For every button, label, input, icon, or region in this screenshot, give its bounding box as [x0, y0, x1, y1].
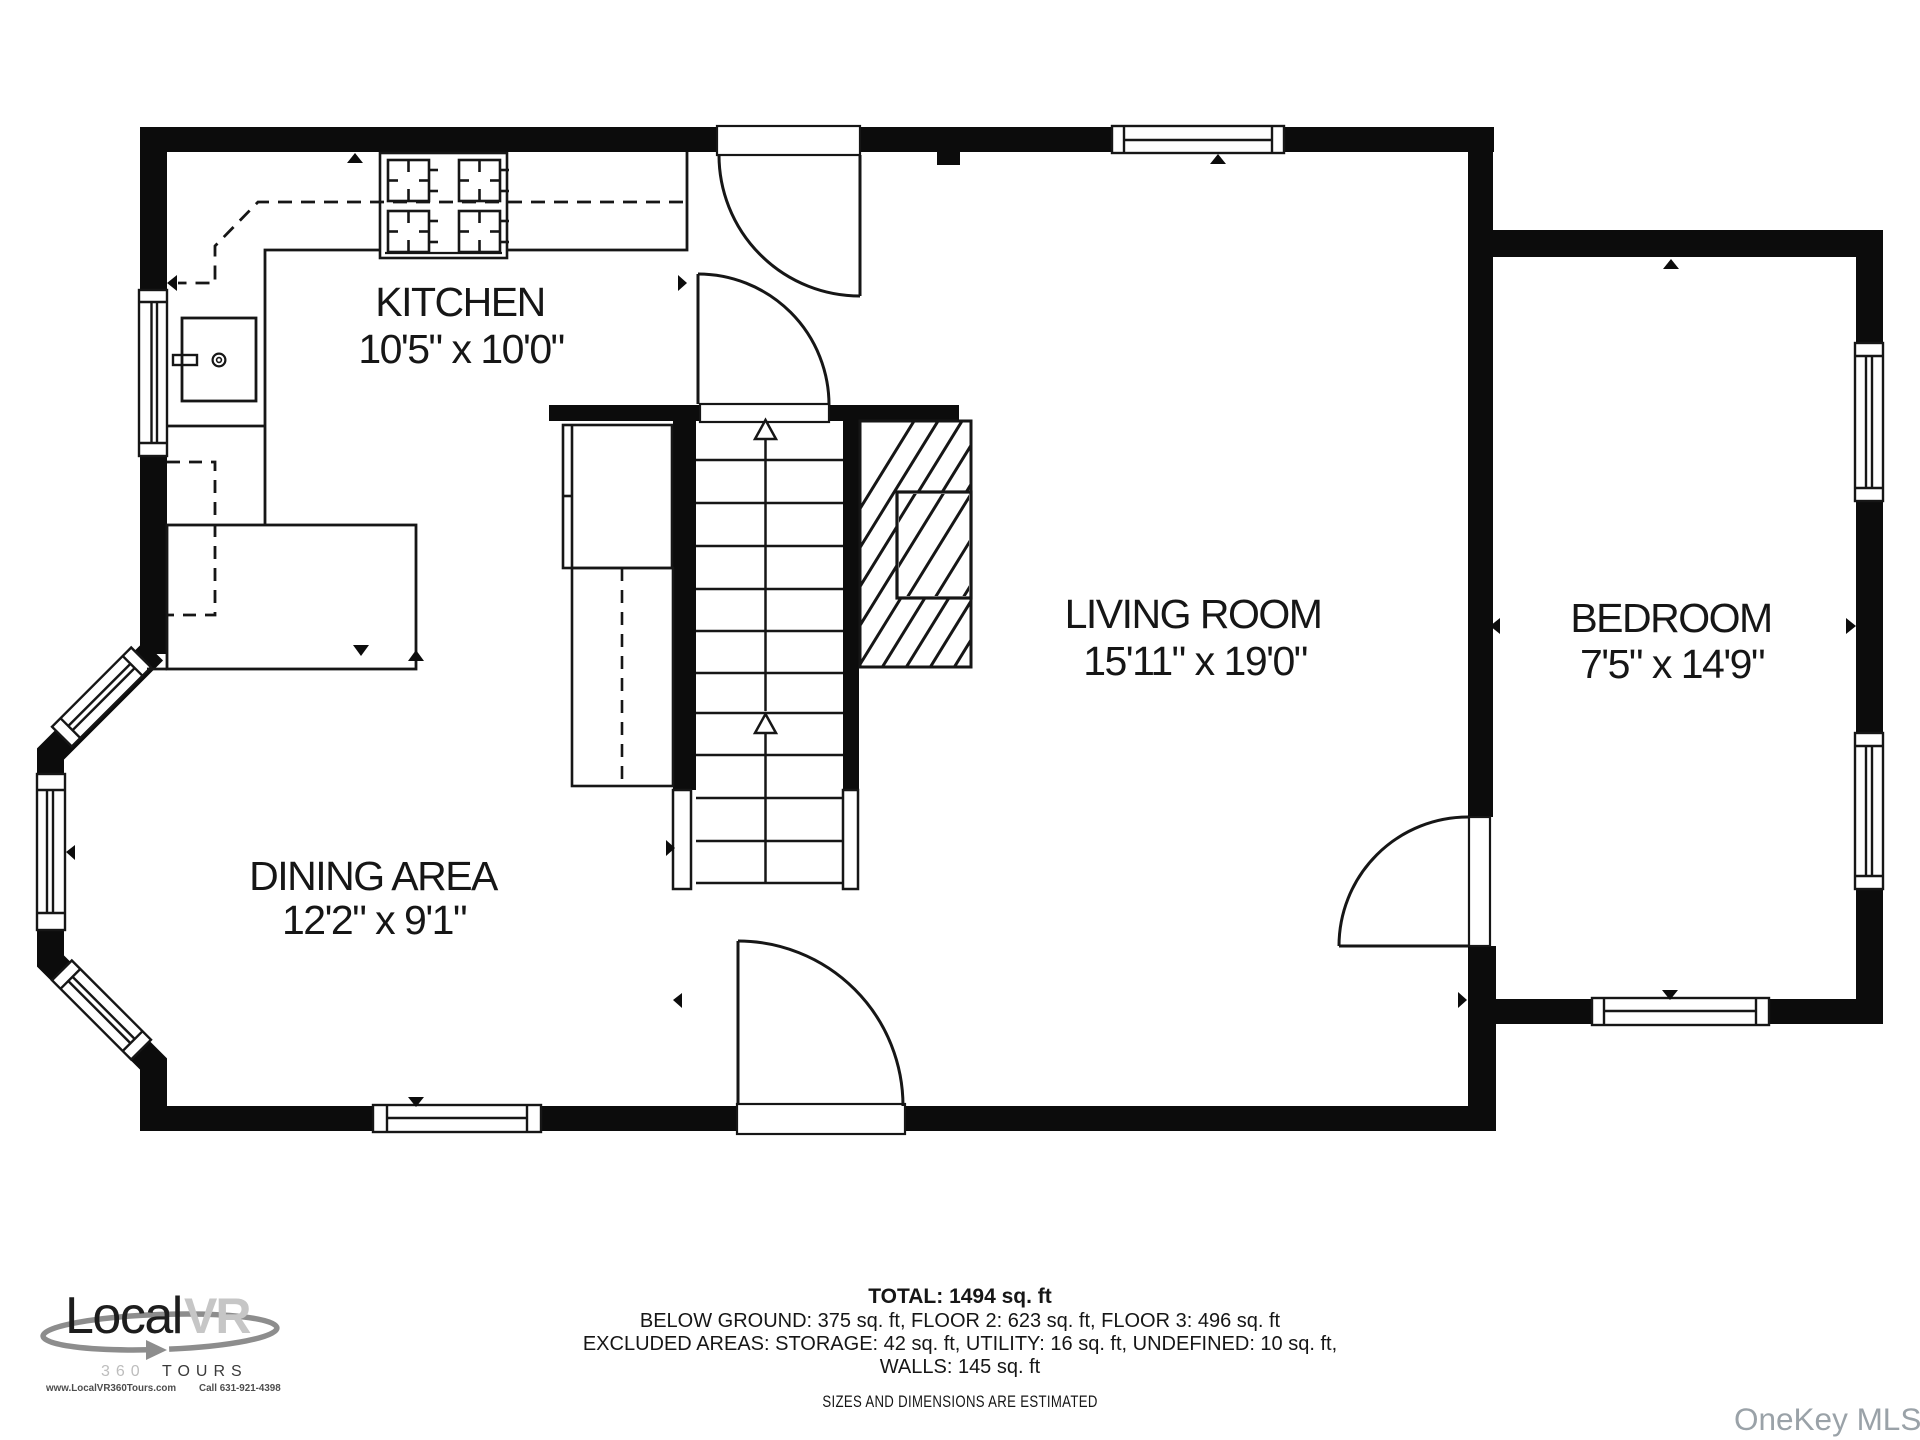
svg-text:12'2" x 9'1": 12'2" x 9'1" [282, 897, 466, 943]
svg-text:Call 631-921-4398: Call 631-921-4398 [199, 1383, 281, 1394]
svg-text:10'5" x 10'0": 10'5" x 10'0" [358, 326, 563, 372]
svg-text:EXCLUDED AREAS: STORAGE: 42 sq: EXCLUDED AREAS: STORAGE: 42 sq. ft, UTIL… [583, 1333, 1337, 1355]
svg-text:Local: Local [65, 1287, 182, 1345]
svg-text:BELOW GROUND: 375 sq. ft, FLOO: BELOW GROUND: 375 sq. ft, FLOOR 2: 623 s… [640, 1310, 1281, 1332]
svg-text:TOURS: TOURS [162, 1363, 248, 1380]
svg-text:15'11" x 19'0": 15'11" x 19'0" [1083, 638, 1307, 684]
svg-text:www.LocalVR360Tours.com: www.LocalVR360Tours.com [45, 1383, 176, 1394]
svg-text:WALLS: 145 sq. ft: WALLS: 145 sq. ft [880, 1356, 1041, 1378]
svg-text:BEDROOM: BEDROOM [1570, 595, 1771, 641]
svg-text:TOTAL: 1494 sq. ft: TOTAL: 1494 sq. ft [868, 1285, 1052, 1308]
svg-text:VR: VR [184, 1288, 251, 1344]
svg-text:LIVING ROOM: LIVING ROOM [1065, 591, 1322, 637]
svg-text:DINING AREA: DINING AREA [249, 853, 499, 899]
svg-text:KITCHEN: KITCHEN [375, 279, 544, 325]
svg-text:SIZES AND DIMENSIONS ARE ESTIM: SIZES AND DIMENSIONS ARE ESTIMATED [822, 1393, 1097, 1412]
svg-text:360: 360 [101, 1363, 146, 1380]
svg-text:OneKey MLS: OneKey MLS [1734, 1401, 1920, 1437]
svg-text:7'5" x 14'9": 7'5" x 14'9" [1580, 641, 1764, 687]
